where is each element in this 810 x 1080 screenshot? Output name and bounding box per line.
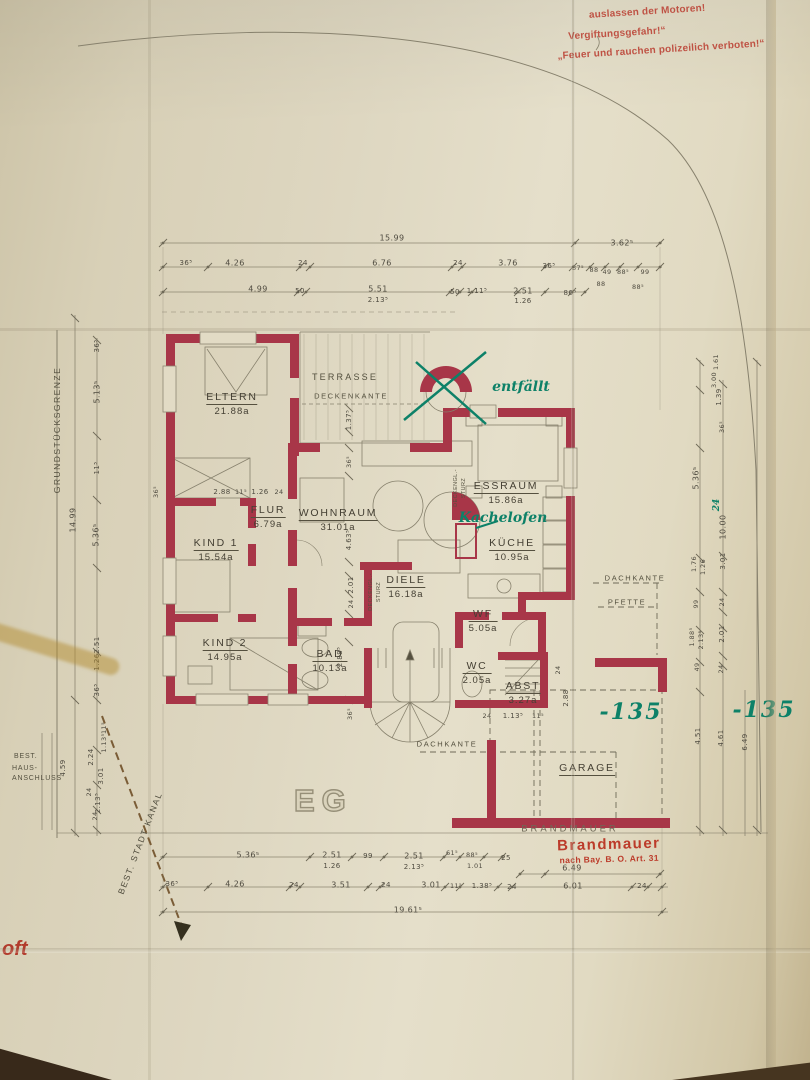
brandmauer-stamp: Brandmauer nach Bay. B. O. Art. 31 xyxy=(524,834,695,866)
plan-linework xyxy=(0,0,810,1080)
stair xyxy=(370,648,450,742)
property-boundary-label: GRUNDSTÜCKSGRENZE xyxy=(52,367,62,494)
floor-plan-scan: 15.993.62⁵36⁵4.26246.76243.7636⁵37⁵88498… xyxy=(0,0,810,1080)
dimension-lines xyxy=(75,243,757,912)
terrace-hatch xyxy=(300,332,430,445)
haus-label-1: HAUS- xyxy=(12,765,38,772)
kanal-line xyxy=(42,716,191,941)
haus-label-2: ANSCHLUSS xyxy=(12,775,62,782)
boundary-curve xyxy=(57,32,768,838)
floor-level-label: EG xyxy=(294,783,353,819)
best-label: BEST. xyxy=(14,753,37,760)
red-ink-fragment: oft xyxy=(2,938,28,961)
kachelofen xyxy=(424,492,498,558)
